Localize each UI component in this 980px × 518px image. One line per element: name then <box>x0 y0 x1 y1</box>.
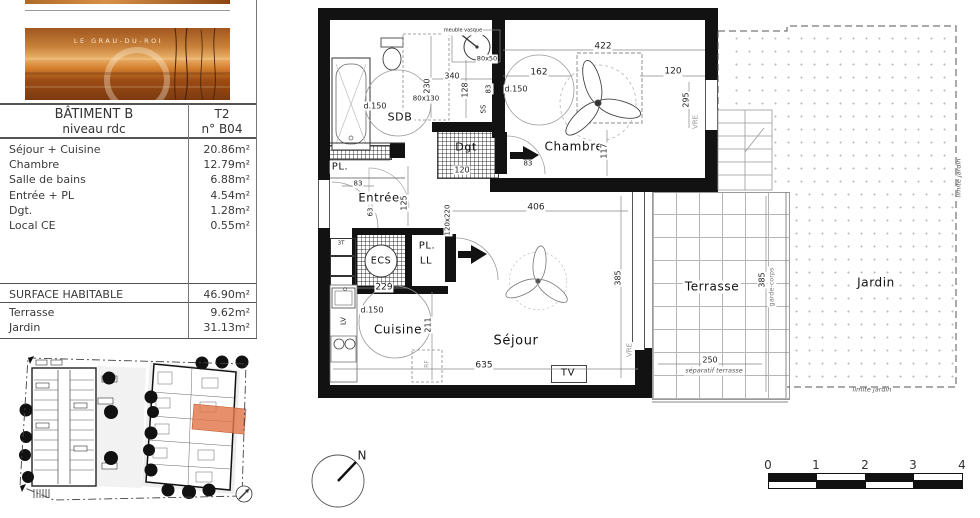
dim-83-chambre: 83 <box>523 160 534 169</box>
ss-label: SS <box>480 104 489 115</box>
dim-385-terrasse: 385 <box>758 271 767 288</box>
separatif-terrasse-label: séparatif terrasse <box>684 367 744 376</box>
dim-250: 250 <box>701 356 718 365</box>
scale-segment <box>816 481 866 489</box>
room-label-chambre: Chambre <box>543 141 606 154</box>
room-label-cuisine: Cuisine <box>372 324 424 337</box>
room-label-dgt: Dgt <box>453 141 479 154</box>
north-label: N <box>357 452 368 461</box>
lv-label: LV <box>340 316 349 326</box>
room-label-ll: LL <box>418 255 434 268</box>
rf-label: RF <box>423 359 432 369</box>
scale-segment <box>768 473 817 481</box>
plan-linework <box>0 0 980 518</box>
scale-tick: 3 <box>909 458 917 472</box>
dim-406: 406 <box>526 204 545 213</box>
scale-segment <box>913 481 963 489</box>
dim-80x130: 80x130 <box>412 95 440 104</box>
dim-229: 229 <box>374 284 393 293</box>
garde-corps-label: garde-corps <box>768 267 777 308</box>
dim-120-chambre: 120 <box>663 68 682 77</box>
scale-tick: 4 <box>958 458 966 472</box>
vre-label-sejour: VRE <box>626 342 635 358</box>
dim-162: 162 <box>529 69 548 78</box>
dim-80x50: 80x50 <box>476 55 498 64</box>
dim-63: 63 <box>367 207 376 218</box>
tv-label: TV <box>559 367 577 380</box>
room-label-terrasse: Terrasse <box>683 281 741 294</box>
room-label-ecs: ECS <box>369 255 393 268</box>
dim-83-entree: 83 <box>353 180 364 189</box>
dim-128: 128 <box>461 81 470 98</box>
dim-d150-cuisine: d.150 <box>360 306 385 315</box>
dim-120x220: 120x220 <box>444 204 453 237</box>
meuble-vasque-label: meuble vasque <box>443 27 483 36</box>
room-label-pl-ll: PL. <box>417 240 438 253</box>
room-label-sejour: Séjour <box>492 335 541 348</box>
dim-295: 295 <box>682 91 691 108</box>
room-label-pl: PL. <box>330 161 351 174</box>
scale-tick: 0 <box>764 458 772 472</box>
limite-jardin-right: limite jardin <box>955 158 964 199</box>
local-ce-label: 3T <box>337 240 346 249</box>
scale-segment <box>913 473 963 481</box>
scale-tick: 1 <box>812 458 820 472</box>
dim-385-sejour: 385 <box>614 269 623 286</box>
scale-segment <box>865 473 914 481</box>
dim-117: 117 <box>600 142 609 159</box>
scale-tick: 2 <box>861 458 869 472</box>
dim-83-sdb: 83 <box>485 84 494 95</box>
dim-d150-chambre: d.150 <box>504 85 529 94</box>
scale-segment <box>768 481 817 489</box>
scale-segment <box>816 473 866 481</box>
room-label-jardin: Jardin <box>855 277 897 290</box>
dim-d150-sdb: d.150 <box>363 102 388 111</box>
room-label-entree: Entrée <box>356 192 401 205</box>
dim-125: 125 <box>400 194 409 211</box>
floor-plan-sheet: LE GRAU-DU-ROI BÂTIMENT B niveau rdc T2 … <box>0 0 980 518</box>
dim-230: 230 <box>423 77 432 94</box>
dim-422: 422 <box>593 43 612 52</box>
scale-segment <box>865 481 914 489</box>
limite-jardin-bottom: limite jardin <box>852 386 893 395</box>
dim-211: 211 <box>424 316 433 333</box>
room-label-sdb: SDB <box>386 111 415 124</box>
dim-635: 635 <box>474 362 493 371</box>
vre-label-chambre: VRE <box>692 114 701 130</box>
dim-120-dgt: 120 <box>453 166 470 175</box>
dim-340: 340 <box>443 72 460 81</box>
